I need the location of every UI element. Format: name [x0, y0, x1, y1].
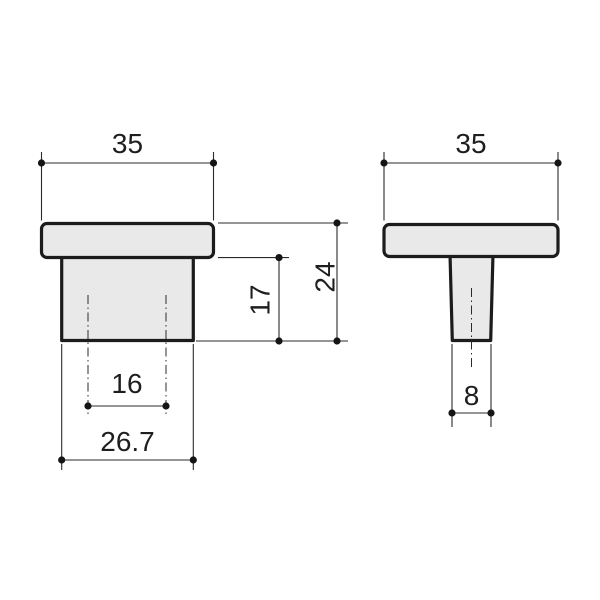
dimension-dot: [275, 254, 282, 261]
dim-label-front-hole-spacing: 16: [111, 368, 142, 399]
dimension-dot: [84, 402, 91, 409]
dimension-dot: [448, 409, 455, 416]
dimension-dot: [554, 159, 561, 166]
dimension-dot: [333, 337, 340, 344]
front-view: 35 17 24: [38, 128, 348, 470]
dimension-dot: [38, 159, 45, 166]
dimension-dot: [275, 337, 282, 344]
dimension-dot: [333, 219, 340, 226]
dimension-dot: [58, 456, 65, 463]
dim-label-side-stem-width: 8: [464, 380, 480, 411]
dimension-dot: [190, 456, 197, 463]
dim-label-front-base-width: 26.7: [100, 426, 155, 457]
dimension-dot: [210, 159, 217, 166]
dim-label-front-cap-width: 35: [112, 128, 143, 159]
dimension-dot: [487, 409, 494, 416]
technical-drawing: 35 17 24: [0, 0, 600, 600]
dim-front-base-width: 26.7: [58, 344, 197, 470]
side-view: 35 8: [380, 128, 561, 427]
dimension-dot: [380, 159, 387, 166]
dim-side-cap-width: 35: [380, 128, 561, 221]
dimension-dot: [162, 402, 169, 409]
dim-front-body-height: 17: [245, 254, 283, 345]
dim-front-hole-spacing: 16: [84, 368, 169, 410]
dim-label-front-body-height: 17: [245, 284, 276, 315]
side-cap-outline: [384, 225, 558, 257]
dim-side-stem-width: 8: [448, 344, 494, 427]
drawing-canvas: 35 17 24: [0, 0, 600, 600]
dim-front-cap-width: 35: [38, 128, 217, 221]
dim-label-front-total-height: 24: [310, 261, 341, 292]
front-cap-outline: [42, 224, 214, 258]
dim-front-total-height: 24: [310, 219, 341, 344]
dim-label-side-cap-width: 35: [455, 128, 486, 159]
front-body-outline: [62, 248, 194, 341]
